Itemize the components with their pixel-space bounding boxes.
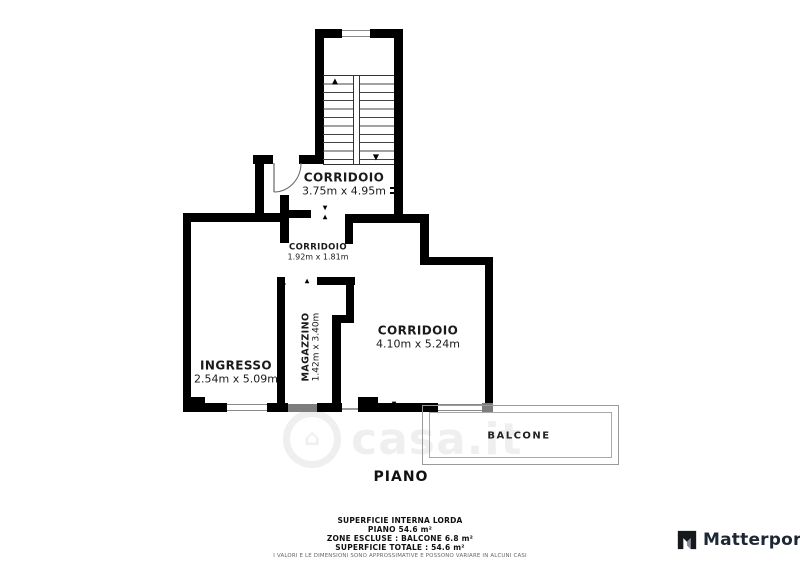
- room-dims: 1.92m x 1.81m: [287, 253, 348, 262]
- room-label-corridoio-right: CORRIDOIO 4.10m x 5.24m: [376, 324, 460, 351]
- matterport-logo-icon: [676, 529, 698, 551]
- room-dims: 3.75m x 4.95m: [302, 185, 386, 198]
- wall-tick: [390, 187, 394, 189]
- wall-tick: [390, 192, 394, 194]
- opening-line: [342, 408, 358, 410]
- room-label-corridoio-top: CORRIDOIO 3.75m x 4.95m: [302, 171, 386, 198]
- stairs-down-arrow-icon: ▼: [373, 154, 379, 161]
- wall: [183, 213, 191, 412]
- wall: [420, 257, 493, 265]
- room-label-balcone: BALCONE: [487, 431, 550, 442]
- wall: [183, 213, 281, 222]
- room-name: CORRIDOIO: [302, 171, 386, 185]
- door-marker-icon: ▲: [323, 214, 328, 221]
- door-arc-icon: [272, 161, 304, 195]
- wall: [345, 214, 353, 244]
- door-marker-icon: ▼: [326, 278, 331, 285]
- door-marker-icon: ▶: [282, 281, 287, 288]
- room-name: BALCONE: [487, 431, 550, 442]
- matterport-logo: Matterport: [676, 529, 800, 551]
- room-name: MAGAZZINO: [301, 313, 312, 382]
- door-threshold-ramp: [288, 404, 317, 412]
- room-name: INGRESSO: [194, 359, 278, 373]
- wall: [394, 29, 403, 223]
- floor-label: PIANO: [374, 469, 429, 485]
- window: [342, 30, 370, 37]
- house-glyph: ⌂: [304, 428, 320, 450]
- house-watermark-icon: ⌂: [283, 410, 341, 468]
- summary-title: SUPERFICIE INTERNA LORDA: [0, 516, 800, 525]
- room-dims: 4.10m x 5.24m: [376, 338, 460, 351]
- wall: [317, 403, 342, 412]
- door-marker-icon: ▼: [392, 401, 397, 408]
- wall: [183, 403, 227, 412]
- staircase-center-rail: [353, 76, 360, 164]
- wall: [332, 315, 341, 407]
- wall: [255, 155, 264, 222]
- staircase: [323, 75, 394, 165]
- floor-plan-page: ⌂ casa.it ▲ ▼ ▼ ▲ ▶: [0, 0, 800, 566]
- wall: [277, 277, 285, 404]
- door-marker-icon: ▼: [323, 205, 328, 212]
- room-label-ingresso: INGRESSO 2.54m x 5.09m: [194, 359, 278, 386]
- wall: [267, 403, 288, 412]
- wall: [289, 210, 311, 218]
- wall: [345, 214, 429, 223]
- room-label-magazzino: MAGAZZINO 1.42m x 3.40m: [301, 313, 322, 382]
- stairs-up-arrow-icon: ▲: [332, 78, 338, 85]
- door-marker-icon: ▲: [305, 278, 310, 285]
- matterport-logo-text: Matterport: [703, 530, 800, 550]
- window: [227, 404, 267, 411]
- wall: [485, 257, 493, 413]
- door-marker-icon: ▼: [216, 214, 221, 221]
- room-name: CORRIDOIO: [376, 324, 460, 338]
- room-dims: 1.42m x 3.40m: [312, 313, 322, 382]
- summary-disclaimer: I VALORI E LE DIMENSIONI SONO APPROSSIMA…: [0, 552, 800, 560]
- door-marker-icon: ▶: [282, 230, 287, 237]
- room-dims: 2.54m x 5.09m: [194, 373, 278, 386]
- room-name: CORRIDOIO: [287, 243, 348, 253]
- room-label-corridoio-mid: CORRIDOIO 1.92m x 1.81m: [287, 243, 348, 262]
